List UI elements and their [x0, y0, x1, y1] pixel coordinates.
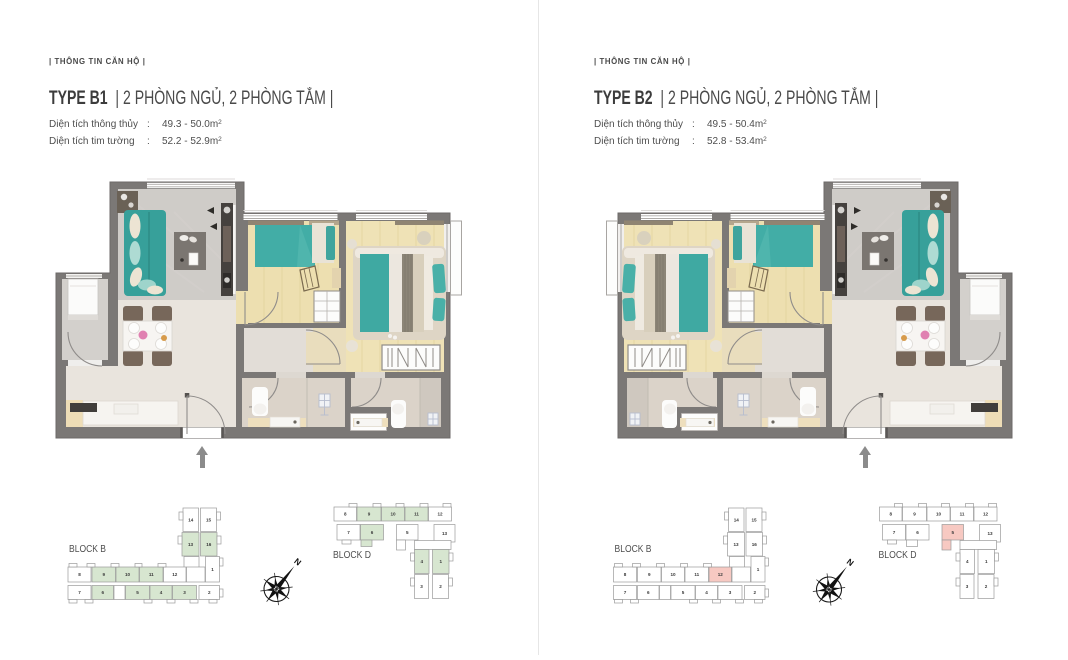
svg-text:2: 2 — [208, 590, 211, 595]
svg-text:8: 8 — [344, 512, 347, 517]
svg-text:14: 14 — [734, 517, 740, 522]
svg-text:13: 13 — [442, 531, 448, 536]
svg-text:11: 11 — [960, 512, 965, 517]
svg-text:BLOCK B: BLOCK B — [615, 544, 652, 555]
svg-text:5: 5 — [136, 590, 139, 595]
svg-text:6: 6 — [371, 530, 374, 535]
svg-text:12: 12 — [718, 572, 724, 577]
svg-text:BLOCK B: BLOCK B — [69, 544, 106, 555]
svg-text:4: 4 — [705, 590, 708, 595]
svg-text:8: 8 — [889, 512, 892, 517]
svg-text:4: 4 — [160, 590, 163, 595]
svg-text:1: 1 — [757, 567, 760, 572]
svg-text:1: 1 — [211, 567, 214, 572]
svg-text:8: 8 — [624, 572, 627, 577]
svg-text:3: 3 — [966, 584, 969, 589]
svg-text:9: 9 — [368, 512, 371, 517]
svg-text:11: 11 — [414, 512, 419, 517]
svg-text:2: 2 — [985, 584, 988, 589]
svg-text:5: 5 — [951, 530, 954, 535]
svg-text:12: 12 — [172, 572, 178, 577]
svg-text:11: 11 — [694, 572, 699, 577]
svg-text:10: 10 — [390, 512, 396, 517]
svg-text:BLOCK D: BLOCK D — [879, 550, 917, 561]
svg-text:5: 5 — [406, 530, 409, 535]
svg-text:15: 15 — [206, 517, 212, 522]
svg-text:2: 2 — [439, 584, 442, 589]
svg-text:1: 1 — [439, 559, 442, 564]
svg-text:5: 5 — [682, 590, 685, 595]
svg-text:7: 7 — [624, 590, 627, 595]
svg-text:11: 11 — [149, 572, 154, 577]
svg-text:3: 3 — [420, 584, 423, 589]
svg-text:15: 15 — [751, 517, 757, 522]
svg-text:6: 6 — [916, 530, 919, 535]
svg-text:3: 3 — [729, 590, 732, 595]
svg-text:8: 8 — [78, 572, 81, 577]
svg-text:14: 14 — [188, 517, 194, 522]
svg-text:6: 6 — [101, 590, 104, 595]
svg-text:16: 16 — [752, 542, 758, 547]
svg-text:6: 6 — [647, 590, 650, 595]
svg-text:2: 2 — [753, 590, 756, 595]
svg-text:1: 1 — [985, 559, 988, 564]
svg-text:13: 13 — [188, 542, 194, 547]
svg-text:10: 10 — [670, 572, 676, 577]
svg-text:3: 3 — [183, 590, 186, 595]
svg-text:13: 13 — [987, 531, 993, 536]
svg-text:10: 10 — [125, 572, 131, 577]
svg-text:7: 7 — [78, 590, 81, 595]
svg-text:4: 4 — [420, 559, 423, 564]
svg-text:N: N — [292, 556, 303, 568]
svg-text:7: 7 — [347, 530, 350, 535]
svg-text:9: 9 — [102, 572, 105, 577]
svg-text:12: 12 — [437, 512, 443, 517]
svg-text:12: 12 — [983, 512, 989, 517]
svg-text:BLOCK D: BLOCK D — [333, 550, 371, 561]
svg-text:13: 13 — [733, 542, 739, 547]
svg-text:7: 7 — [893, 530, 896, 535]
svg-text:9: 9 — [648, 572, 651, 577]
svg-text:9: 9 — [913, 512, 916, 517]
svg-text:4: 4 — [966, 559, 969, 564]
svg-text:10: 10 — [936, 512, 942, 517]
svg-text:16: 16 — [206, 542, 212, 547]
svg-text:N: N — [845, 556, 856, 568]
